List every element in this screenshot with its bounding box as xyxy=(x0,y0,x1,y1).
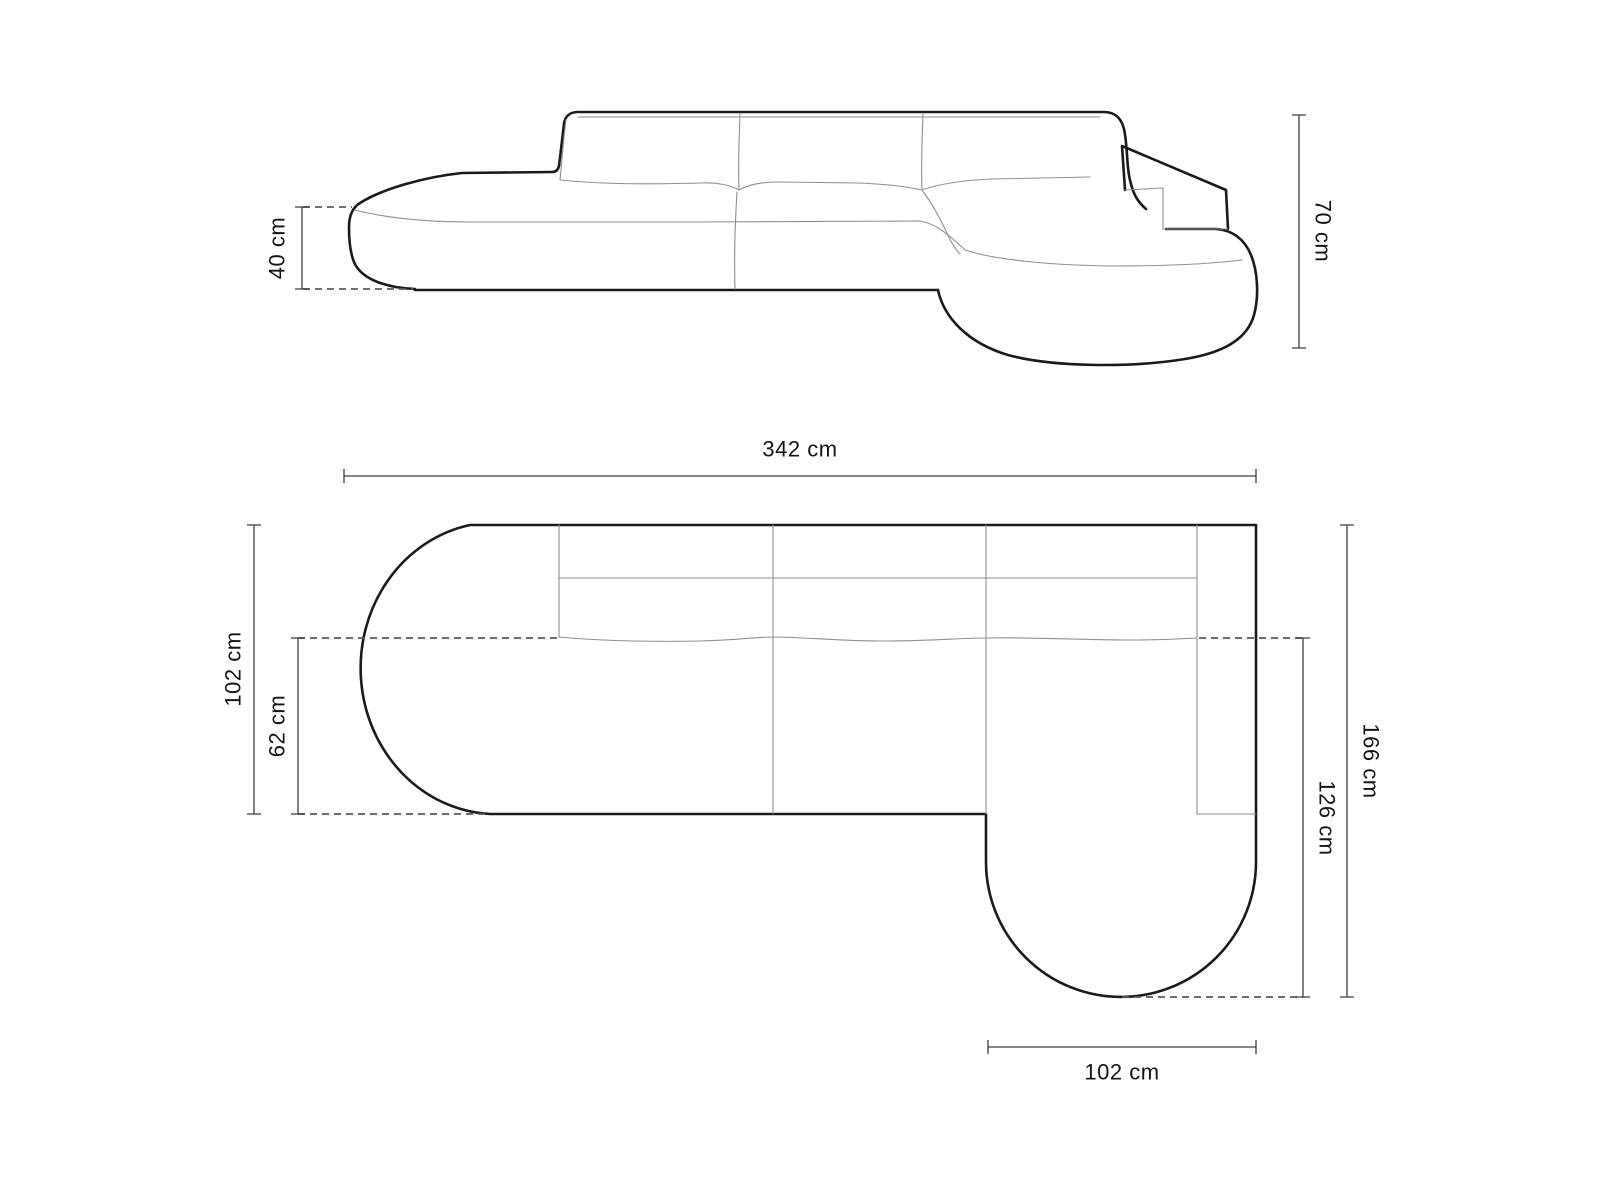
dimension-label-chaise-depth: 126 cm xyxy=(1315,780,1340,855)
dimension-label-total-height: 70 cm xyxy=(1311,200,1336,262)
side-backrest-bottom-contour xyxy=(560,177,1090,190)
side-backrest-seam-2 xyxy=(922,114,923,189)
side-armrest-block xyxy=(1122,146,1228,229)
dimension-line-total-depth xyxy=(1340,525,1354,997)
dimension-line-total-width xyxy=(344,469,1256,483)
dimension-line-chaise-depth xyxy=(1296,638,1310,997)
side-sofa-body-outline xyxy=(349,112,1146,289)
dimension-label-seat-depth: 62 cm xyxy=(265,695,290,757)
side-backrest-seam-1 xyxy=(739,114,740,189)
side-chaise-outline xyxy=(938,229,1257,365)
side-armrest-inner-edges xyxy=(1125,188,1228,229)
top-view: 342 cm 102 cm 62 cm 166 cm 126 cm 102 cm xyxy=(221,437,1384,1085)
dimension-label-seat-height: 40 cm xyxy=(265,217,290,279)
plan-seat-front-line xyxy=(559,637,1197,641)
plan-sofa-outline xyxy=(361,525,1256,997)
plan-armrest-inner-edge xyxy=(1197,525,1256,814)
sofa-dimension-diagram: 40 cm 70 cm 342 cm 102 cm 62 cm 166 cm xyxy=(0,0,1600,1200)
dimension-line-total-height xyxy=(1292,115,1306,348)
side-chaise-crease xyxy=(922,190,960,254)
dimension-label-total-depth: 166 cm xyxy=(1359,723,1384,798)
dimension-line-seat-depth xyxy=(291,638,305,814)
side-view: 40 cm 70 cm xyxy=(265,112,1336,365)
side-seat-seam xyxy=(735,192,737,289)
dimension-line-depth xyxy=(247,525,261,814)
dimension-line-chaise-width xyxy=(988,1040,1256,1054)
side-seat-roll-contour xyxy=(355,210,1242,266)
dimension-label-total-width: 342 cm xyxy=(762,437,837,462)
dimension-label-depth: 102 cm xyxy=(221,631,246,706)
dimension-line-seat-height xyxy=(295,207,309,289)
dimension-label-chaise-width: 102 cm xyxy=(1084,1060,1159,1085)
diagram-canvas: 40 cm 70 cm 342 cm 102 cm 62 cm 166 cm xyxy=(0,0,1600,1200)
